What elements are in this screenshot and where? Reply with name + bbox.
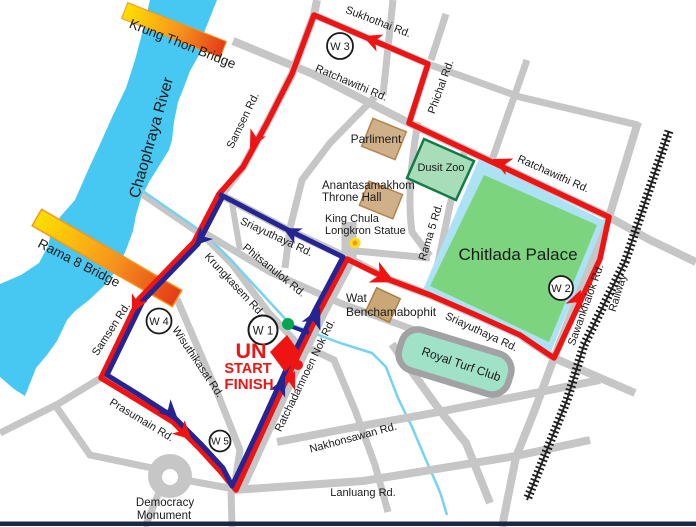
svg-text:Monument: Monument	[137, 510, 192, 522]
svg-text:Wat: Wat	[346, 291, 368, 305]
svg-text:Chitlada Palace: Chitlada Palace	[458, 245, 577, 264]
svg-text:Benchamabophit: Benchamabophit	[346, 305, 437, 319]
svg-text:Longkron Statue: Longkron Statue	[325, 225, 406, 237]
svg-text:FINISH: FINISH	[224, 376, 273, 393]
svg-text:W 2: W 2	[551, 283, 571, 295]
svg-text:W 3: W 3	[330, 41, 350, 53]
svg-text:Anantasamakhom: Anantasamakhom	[322, 180, 415, 192]
svg-text:START: START	[224, 361, 271, 377]
svg-text:Lanluang Rd.: Lanluang Rd.	[330, 487, 395, 499]
svg-text:Parliment: Parliment	[351, 132, 402, 146]
svg-text:W 4: W 4	[149, 316, 169, 328]
svg-text:W 1: W 1	[253, 326, 273, 338]
svg-text:W 5: W 5	[211, 437, 229, 448]
svg-text:King Chula: King Chula	[325, 213, 380, 225]
svg-text:Dusit Zoo: Dusit Zoo	[417, 162, 464, 174]
svg-text:Throne Hall: Throne Hall	[322, 192, 381, 204]
svg-text:Democracy: Democracy	[136, 497, 194, 509]
svg-text:UN: UN	[235, 339, 266, 363]
